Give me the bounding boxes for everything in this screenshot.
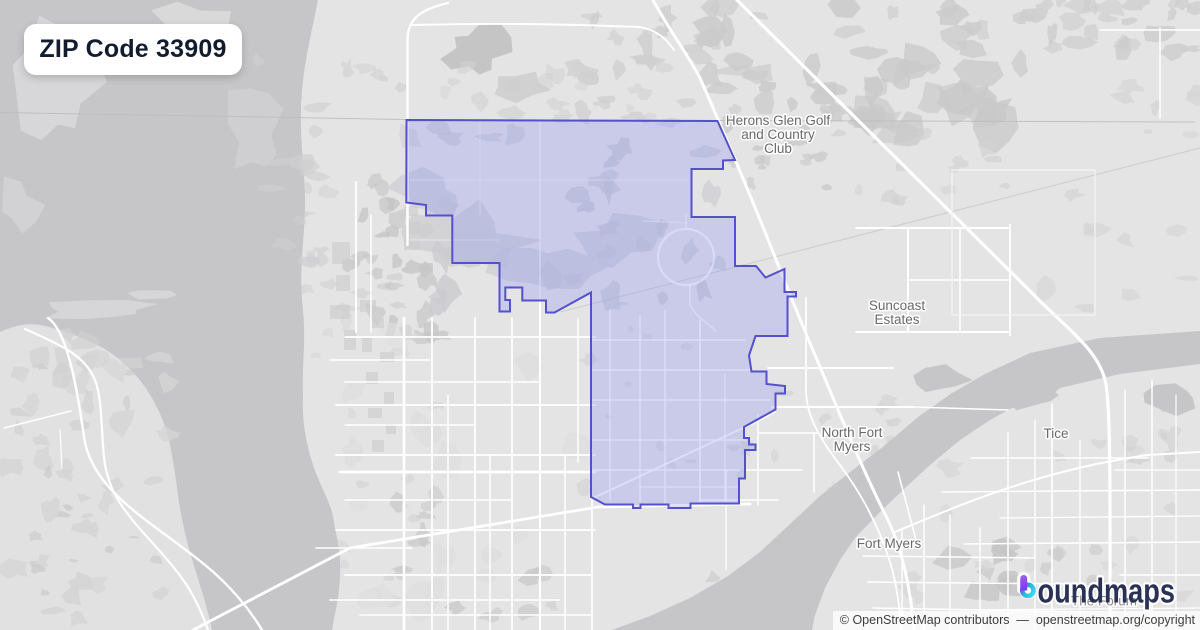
svg-text:North Fort: North Fort [822,425,883,440]
svg-text:Myers: Myers [834,439,871,454]
svg-text:oundmaps: oundmaps [1038,573,1176,611]
svg-text:Estates: Estates [874,312,919,327]
svg-text:Club: Club [764,141,792,156]
svg-text:Suncoast: Suncoast [869,298,926,313]
svg-text:Herons Glen Golf: Herons Glen Golf [726,113,831,128]
svg-text:Tice: Tice [1043,426,1068,441]
svg-text:Fort Myers: Fort Myers [857,536,922,551]
svg-text:and Country: and Country [741,127,815,142]
